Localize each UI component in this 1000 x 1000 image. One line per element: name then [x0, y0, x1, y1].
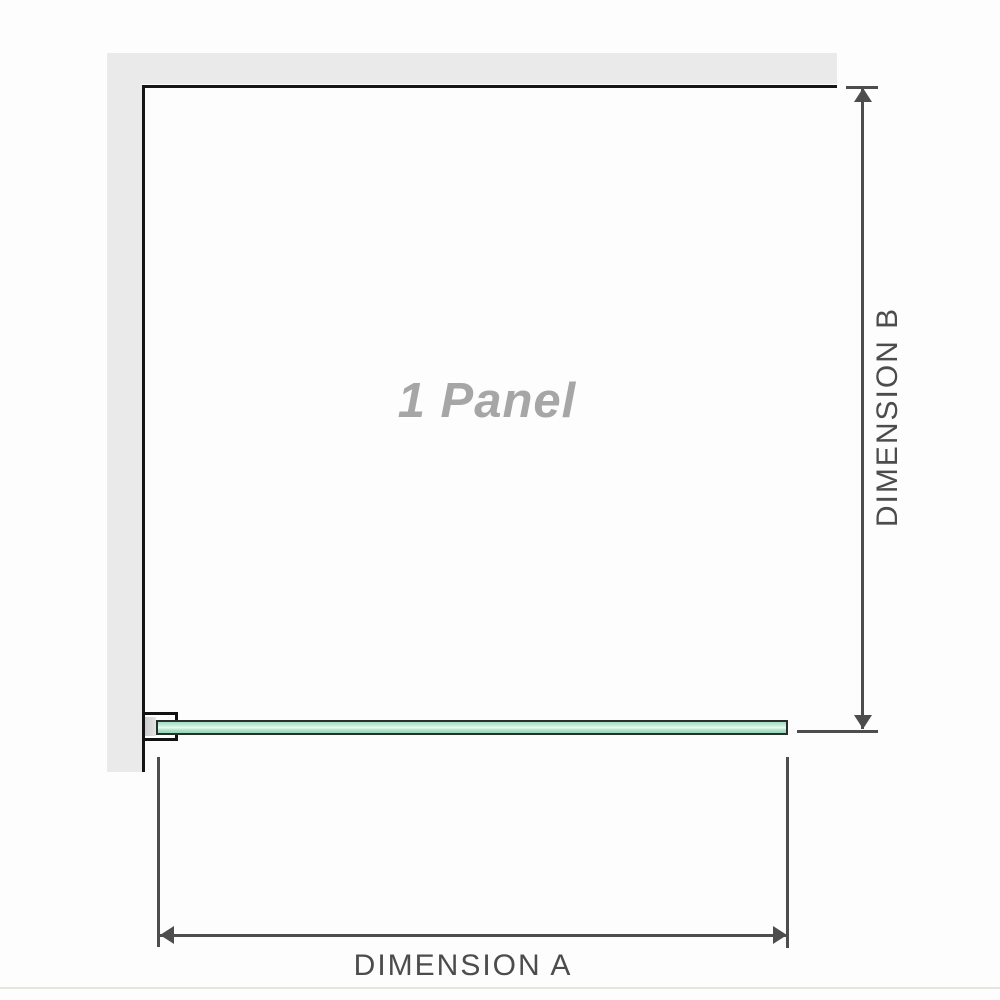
dimension-a-extension-right: [786, 757, 789, 948]
arrow-down-icon: [854, 715, 872, 729]
arrow-up-icon: [854, 88, 872, 102]
arrow-left-icon: [160, 926, 174, 944]
wall-left-strip: [107, 53, 142, 772]
dimension-b-bottom-tick: [797, 730, 878, 733]
dimension-a-line: [160, 934, 787, 937]
panel-frame-left-line: [142, 85, 145, 772]
dimension-a-extension-left: [157, 757, 160, 947]
dimension-b-line: [861, 89, 864, 729]
wall-bracket-pad: [145, 717, 156, 736]
panel-dimension-diagram: 1 Panel DIMENSION B DIMENSION A: [0, 0, 1000, 1000]
panel-count-label: 1 Panel: [398, 373, 577, 429]
dimension-b-label: DIMENSION B: [871, 307, 905, 527]
panel-frame-top-line: [142, 85, 837, 88]
wall-top-strip: [107, 53, 837, 84]
glass-panel-bar: [156, 720, 788, 735]
bottom-hairline: [0, 987, 1000, 989]
dimension-a-label: DIMENSION A: [354, 949, 573, 983]
arrow-right-icon: [773, 926, 787, 944]
